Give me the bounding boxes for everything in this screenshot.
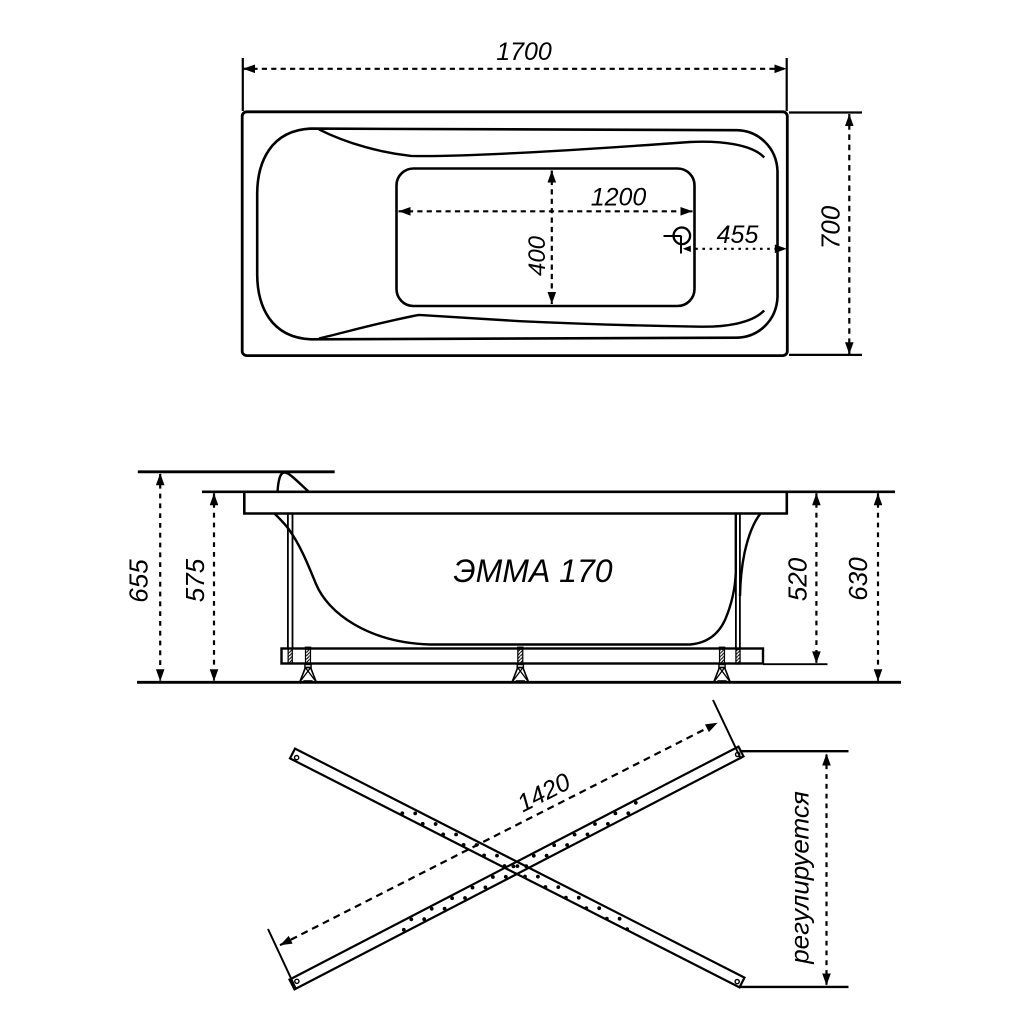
svg-text:1700: 1700 bbox=[496, 38, 552, 66]
svg-text:400: 400 bbox=[524, 235, 551, 276]
svg-text:630: 630 bbox=[843, 557, 873, 601]
svg-text:700: 700 bbox=[816, 205, 846, 249]
svg-text:регулируется: регулируется bbox=[785, 791, 815, 965]
svg-text:455: 455 bbox=[717, 221, 759, 249]
svg-text:520: 520 bbox=[783, 557, 813, 601]
svg-text:1200: 1200 bbox=[591, 184, 647, 212]
svg-text:ЭММА 170: ЭММА 170 bbox=[453, 553, 612, 589]
svg-text:655: 655 bbox=[124, 559, 154, 603]
svg-text:575: 575 bbox=[180, 558, 210, 602]
